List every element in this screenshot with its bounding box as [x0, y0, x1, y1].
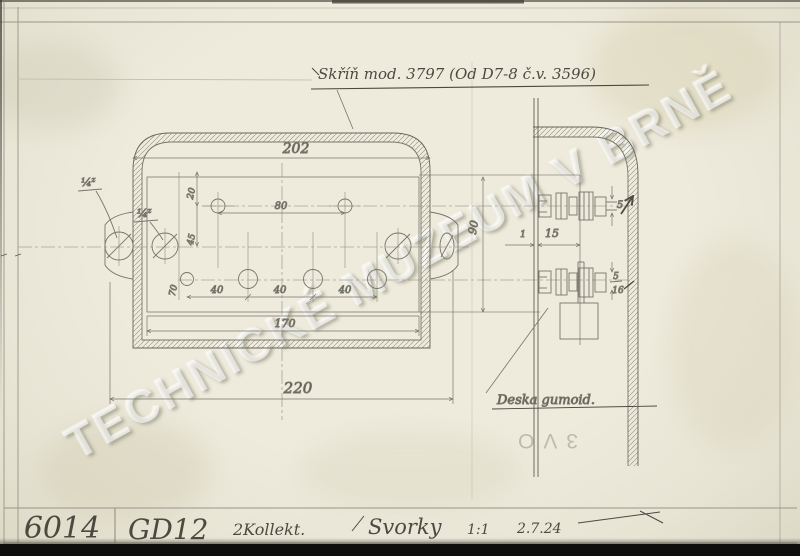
side-wall-outer — [533, 127, 638, 466]
dim-70-label: 70 — [168, 284, 180, 298]
dim-20-label: 20 — [186, 187, 198, 202]
side-wall-inner — [533, 137, 628, 466]
thread-callout-left: ¼z — [78, 176, 117, 238]
dim-5-label: 5 — [617, 200, 623, 211]
drawing-sheet: TECHNICKÉ MUZEUM V BRNĚ — [0, 0, 800, 556]
paper-creases — [18, 62, 472, 500]
front-view: 202 80 20 45 70 40 40 40 170 220 90 ¼z ¼… — [18, 65, 649, 420]
dim-15-label: 15 — [545, 227, 559, 240]
dim-220-label: 220 — [283, 379, 313, 397]
sheet-edge-left — [0, 0, 2, 420]
part-name: Svorky — [368, 515, 443, 539]
upside-down-stamp: 3VO — [500, 420, 578, 452]
border-frame — [0, 2, 800, 544]
component-label: 2Kollekt. — [232, 520, 305, 539]
date-label: 2.7.24 — [516, 521, 562, 537]
sheet-edge-top — [0, 0, 800, 2]
scale-label: 1:1 — [467, 522, 490, 538]
dim-40-label-1: 40 — [210, 285, 224, 296]
sheet-edge-bottom — [0, 544, 800, 556]
dim-40-label-3: 40 — [338, 285, 352, 296]
dim-170-label: 170 — [275, 317, 296, 330]
dim-1-label: 1 — [520, 230, 526, 240]
technical-drawing-canvas: 202 80 20 45 70 40 40 40 170 220 90 ¼z ¼… — [0, 0, 800, 556]
case-annotation: Skříň mod. 3797 (Od D7-8 č.v. 3596) — [311, 65, 649, 129]
svg-text:¼z: ¼z — [81, 176, 96, 189]
dim-80-label: 80 — [275, 201, 288, 212]
dim-40-label-2: 40 — [273, 285, 287, 296]
dim-frac-num: 5 — [613, 272, 619, 282]
dim-202-label: 202 — [282, 141, 310, 157]
dim-frac-den: 16 — [612, 286, 624, 296]
case-note-text: Skříň mod. 3797 (Od D7-8 č.v. 3596) — [318, 65, 596, 83]
holes — [105, 199, 454, 289]
dim-90-label: 90 — [466, 219, 481, 235]
case-outline-inner — [142, 142, 421, 340]
plate-note-text: Deska gumoid. — [496, 393, 595, 408]
dim-45-label: 45 — [186, 233, 198, 248]
terminal-bottom — [539, 262, 634, 339]
side-wall-hatch — [533, 127, 638, 466]
svg-text:¼z: ¼z — [137, 207, 152, 220]
